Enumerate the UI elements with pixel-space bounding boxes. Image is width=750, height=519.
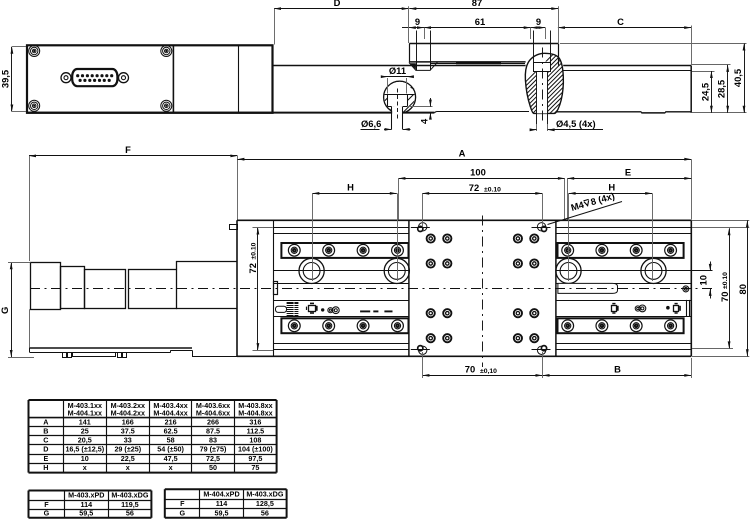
- svg-text:108: 108: [249, 436, 261, 445]
- svg-text:72: 72: [469, 182, 479, 193]
- svg-text:x: x: [169, 463, 173, 472]
- svg-text:58: 58: [167, 436, 175, 445]
- svg-text:56: 56: [261, 508, 269, 517]
- svg-text:x: x: [126, 463, 130, 472]
- svg-text:97,5: 97,5: [248, 454, 262, 463]
- svg-text:B: B: [43, 426, 48, 435]
- svg-text:M-404.xPD: M-404.xPD: [203, 489, 239, 498]
- svg-text:±0.10: ±0.10: [250, 242, 257, 259]
- svg-text:24,5: 24,5: [699, 83, 710, 101]
- svg-text:39,5: 39,5: [0, 70, 10, 88]
- svg-text:C: C: [617, 16, 624, 27]
- svg-text:E: E: [44, 454, 49, 463]
- svg-text:B: B: [614, 364, 621, 375]
- svg-text:22,5: 22,5: [121, 454, 135, 463]
- svg-text:40,5: 40,5: [732, 69, 743, 87]
- svg-text:37.5: 37.5: [121, 426, 135, 435]
- svg-text:Ø6,6: Ø6,6: [361, 118, 381, 129]
- svg-text:29 (±25): 29 (±25): [114, 445, 141, 454]
- svg-text:M-404.1xx: M-404.1xx: [68, 409, 102, 418]
- svg-text:M-403.xDG: M-403.xDG: [246, 489, 284, 498]
- svg-text:E: E: [625, 167, 631, 178]
- svg-text:M-403.xPD: M-403.xPD: [68, 491, 104, 500]
- svg-text:M-403.xDG: M-403.xDG: [111, 491, 149, 500]
- svg-text:D: D: [334, 0, 341, 8]
- svg-text:10: 10: [698, 275, 709, 285]
- svg-text:141: 141: [79, 417, 91, 426]
- svg-text:Ø11: Ø11: [389, 65, 406, 76]
- svg-text:316: 316: [249, 417, 261, 426]
- svg-text:C: C: [43, 436, 48, 445]
- svg-text:83: 83: [209, 436, 217, 445]
- svg-text:±0,10: ±0,10: [480, 368, 497, 375]
- svg-text:72: 72: [247, 263, 258, 273]
- svg-text:9: 9: [536, 16, 541, 27]
- svg-text:G: G: [44, 508, 50, 517]
- svg-text:4: 4: [418, 118, 429, 124]
- svg-text:9: 9: [415, 16, 420, 27]
- svg-text:A: A: [43, 417, 48, 426]
- svg-text:28,5: 28,5: [716, 80, 727, 98]
- svg-text:Ø4,5 (4x): Ø4,5 (4x): [556, 118, 596, 129]
- svg-text:79 (±75): 79 (±75): [200, 445, 227, 454]
- svg-text:G: G: [180, 508, 186, 517]
- svg-text:59,5: 59,5: [79, 508, 93, 517]
- svg-text:266: 266: [207, 417, 219, 426]
- svg-text:H: H: [43, 463, 48, 472]
- svg-text:61: 61: [475, 16, 485, 27]
- svg-text:59,5: 59,5: [215, 508, 229, 517]
- svg-text:166: 166: [122, 417, 134, 426]
- svg-text:10: 10: [81, 454, 89, 463]
- svg-text:54 (±50): 54 (±50): [157, 445, 184, 454]
- svg-text:72,5: 72,5: [206, 454, 220, 463]
- svg-text:70: 70: [719, 292, 730, 302]
- svg-text:H: H: [347, 182, 354, 193]
- svg-text:100: 100: [470, 167, 486, 178]
- svg-text:A: A: [459, 148, 466, 159]
- svg-text:M-404.6xx: M-404.6xx: [196, 409, 230, 418]
- svg-text:F: F: [125, 144, 131, 155]
- svg-text:D: D: [43, 445, 48, 454]
- svg-text:104 (±100): 104 (±100): [238, 445, 273, 454]
- svg-text:F: F: [180, 499, 185, 508]
- svg-text:128,5: 128,5: [256, 499, 274, 508]
- svg-text:M-404.4xx: M-404.4xx: [153, 409, 187, 418]
- svg-text:x: x: [83, 463, 87, 472]
- svg-text:47,5: 47,5: [164, 454, 178, 463]
- svg-text:70: 70: [465, 364, 475, 375]
- svg-text:M-404.8xx: M-404.8xx: [238, 409, 272, 418]
- svg-text:62.5: 62.5: [164, 426, 178, 435]
- svg-text:25: 25: [81, 426, 89, 435]
- svg-text:M-404.2xx: M-404.2xx: [111, 409, 145, 418]
- svg-text:16,5 (±12,5): 16,5 (±12,5): [65, 445, 104, 454]
- svg-text:87.5: 87.5: [206, 426, 220, 435]
- svg-text:50: 50: [209, 463, 217, 472]
- svg-text:75: 75: [251, 463, 259, 472]
- svg-text:±0.10: ±0.10: [722, 272, 729, 289]
- svg-text:G: G: [0, 307, 10, 314]
- svg-text:114: 114: [216, 499, 228, 508]
- svg-text:87: 87: [472, 0, 482, 8]
- svg-text:20,5: 20,5: [78, 436, 92, 445]
- svg-text:33: 33: [124, 436, 132, 445]
- svg-text:216: 216: [165, 417, 177, 426]
- svg-text:±0.10: ±0.10: [484, 186, 501, 193]
- svg-text:56: 56: [126, 508, 134, 517]
- svg-text:112.5: 112.5: [247, 426, 265, 435]
- svg-text:80: 80: [737, 284, 748, 294]
